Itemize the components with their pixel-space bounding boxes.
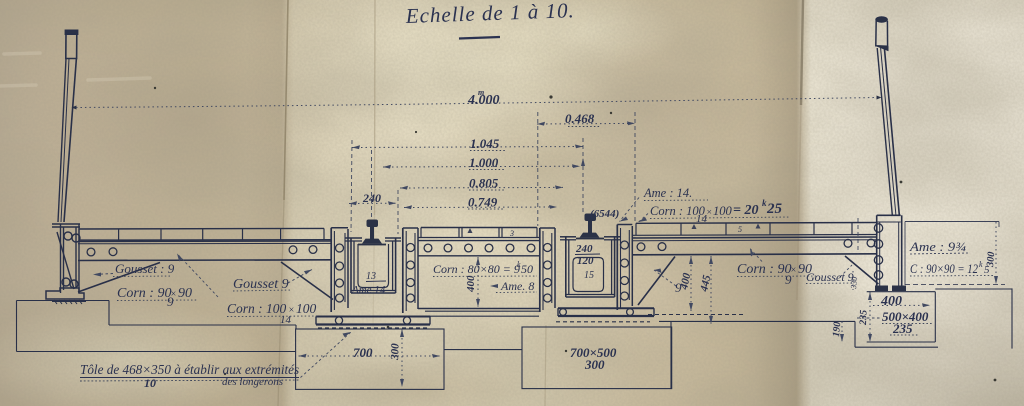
svg-text:240: 240 xyxy=(362,191,381,205)
svg-text:Gousset : 9: Gousset : 9 xyxy=(115,261,175,276)
svg-text:C : 90×90 = 12: C : 90×90 = 12 xyxy=(910,262,978,276)
svg-text:10: 10 xyxy=(144,376,156,390)
svg-text:235: 235 xyxy=(892,321,913,336)
svg-text:25: 25 xyxy=(766,201,783,217)
svg-text:300: 300 xyxy=(985,251,997,268)
svg-text:90: 90 xyxy=(178,286,192,301)
svg-text:9: 9 xyxy=(167,294,174,309)
svg-text:13: 13 xyxy=(366,271,376,282)
svg-text:Corn : 100: Corn : 100 xyxy=(227,301,287,316)
svg-text:100: 100 xyxy=(713,204,733,218)
svg-text:100: 100 xyxy=(296,301,317,316)
svg-text:Corn : 90: Corn : 90 xyxy=(737,262,791,277)
svg-text:300: 300 xyxy=(389,343,402,361)
svg-text:14: 14 xyxy=(280,314,292,326)
svg-text:5: 5 xyxy=(738,225,742,234)
svg-text:0.805: 0.805 xyxy=(469,176,499,191)
svg-text:120: 120 xyxy=(577,255,594,267)
svg-text:190: 190 xyxy=(831,321,843,337)
svg-text:Corn : 80×80 = 9: Corn : 80×80 = 9 xyxy=(433,262,520,276)
svg-text:700: 700 xyxy=(353,345,373,360)
svg-text:Gousset 9: Gousset 9 xyxy=(806,270,854,284)
svg-text:400: 400 xyxy=(880,294,902,309)
svg-text:9: 9 xyxy=(785,272,792,287)
svg-text:Corn : 90: Corn : 90 xyxy=(117,286,171,301)
svg-text:3: 3 xyxy=(509,229,514,238)
svg-text:Ame : 9¾: Ame : 9¾ xyxy=(909,239,966,254)
svg-text:235: 235 xyxy=(858,310,870,326)
svg-text:= 20: = 20 xyxy=(733,203,758,218)
svg-text:1.000: 1.000 xyxy=(469,155,499,170)
svg-text:Gousset 9: Gousset 9 xyxy=(233,277,289,292)
svg-text:(6544): (6544) xyxy=(590,208,619,220)
svg-text:Ame. 8: Ame. 8 xyxy=(500,279,534,293)
svg-text:15: 15 xyxy=(584,270,594,281)
svg-text:0.468: 0.468 xyxy=(565,111,595,126)
svg-text:Tôle de 468×350 à établir aux: Tôle de 468×350 à établir aux extrémités xyxy=(80,362,299,377)
svg-text:400: 400 xyxy=(465,275,477,293)
svg-text:240: 240 xyxy=(575,243,593,255)
svg-text:50: 50 xyxy=(521,262,533,276)
svg-text:des longerons: des longerons xyxy=(222,376,283,388)
svg-text:300: 300 xyxy=(584,357,605,372)
svg-text:m: m xyxy=(478,88,484,97)
svg-text:k: k xyxy=(979,260,983,269)
svg-text:Ame : 14.: Ame : 14. xyxy=(643,186,692,200)
svg-text:1.045: 1.045 xyxy=(470,136,500,151)
svg-text:14: 14 xyxy=(696,213,708,225)
svg-text:Ame 14: Ame 14 xyxy=(351,284,386,296)
svg-text:0.749: 0.749 xyxy=(468,195,498,210)
